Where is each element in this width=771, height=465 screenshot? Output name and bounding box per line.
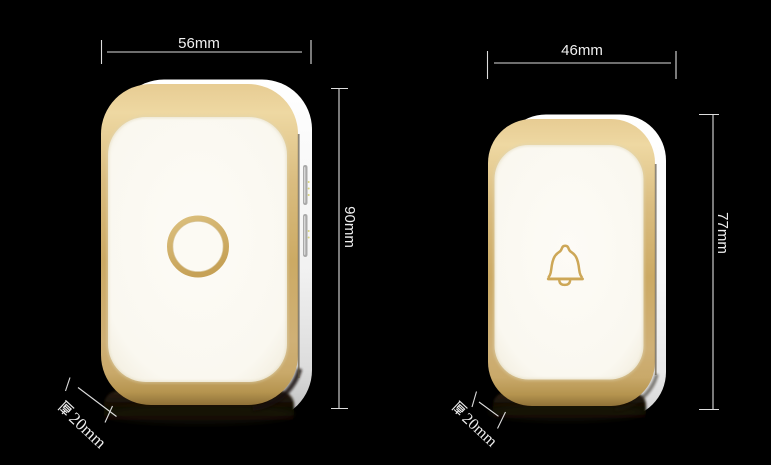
- svg-text:77mm: 77mm: [714, 212, 731, 254]
- svg-text:46mm: 46mm: [561, 42, 603, 59]
- svg-text:90mm: 90mm: [341, 206, 358, 248]
- svg-text:56mm: 56mm: [178, 35, 220, 52]
